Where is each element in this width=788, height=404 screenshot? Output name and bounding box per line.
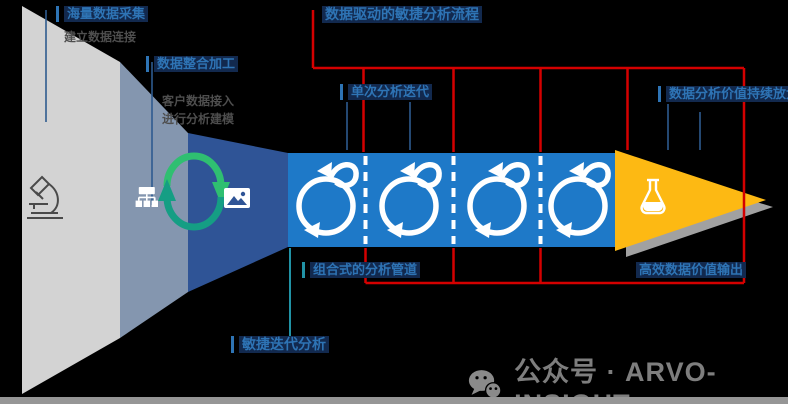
label-bottom-mid-text: 组合式的分析管道: [310, 262, 420, 278]
watermark: 公众号 · ARVO-INSIGHT: [468, 350, 788, 404]
label-stage1: 海量数据采集: [56, 6, 148, 22]
note-stage1: 建立数据连接: [64, 28, 136, 45]
label-stage1-text: 海量数据采集: [64, 6, 148, 22]
label-right-text: 数据分析价值持续放大: [666, 86, 788, 102]
label-bottom-right-text: 高效数据价值输出: [636, 262, 746, 278]
label-iteration-text: 单次分析迭代: [348, 84, 432, 100]
label-tick: [340, 84, 343, 100]
diagram-canvas: 海量数据采集 建立数据连接 数据整合加工 客户数据接入 进行分析建模 数据驱动的…: [0, 0, 788, 404]
bottom-divider-bar: [0, 397, 788, 404]
org-chart-icon: [136, 187, 158, 207]
image-icon: [224, 188, 250, 208]
funnel-stage1-shape: [22, 6, 120, 394]
label-bottom-left: 敏捷迭代分析: [231, 336, 329, 353]
label-tick: [658, 86, 661, 102]
label-process-title-text: 数据驱动的敏捷分析流程: [322, 6, 482, 23]
label-bottom-mid: 组合式的分析管道: [302, 262, 420, 278]
note-stage2-line1: 客户数据接入: [162, 92, 234, 109]
label-right: 数据分析价值持续放大: [658, 86, 788, 102]
label-tick: [146, 56, 149, 72]
watermark-text: 公众号 · ARVO-INSIGHT: [514, 350, 788, 404]
label-iteration: 单次分析迭代: [340, 84, 432, 100]
label-tick: [56, 6, 59, 22]
label-bottom-left-text: 敏捷迭代分析: [239, 336, 329, 353]
label-process-title: 数据驱动的敏捷分析流程: [322, 6, 482, 23]
label-stage2: 数据整合加工: [146, 56, 238, 72]
note-stage2-line2: 进行分析建模: [162, 110, 234, 127]
funnel-diagram-graphic: [0, 0, 788, 404]
label-tick: [231, 336, 234, 353]
label-tick: [302, 262, 305, 278]
label-bottom-right: 高效数据价值输出: [636, 262, 746, 278]
label-stage2-text: 数据整合加工: [154, 56, 238, 72]
